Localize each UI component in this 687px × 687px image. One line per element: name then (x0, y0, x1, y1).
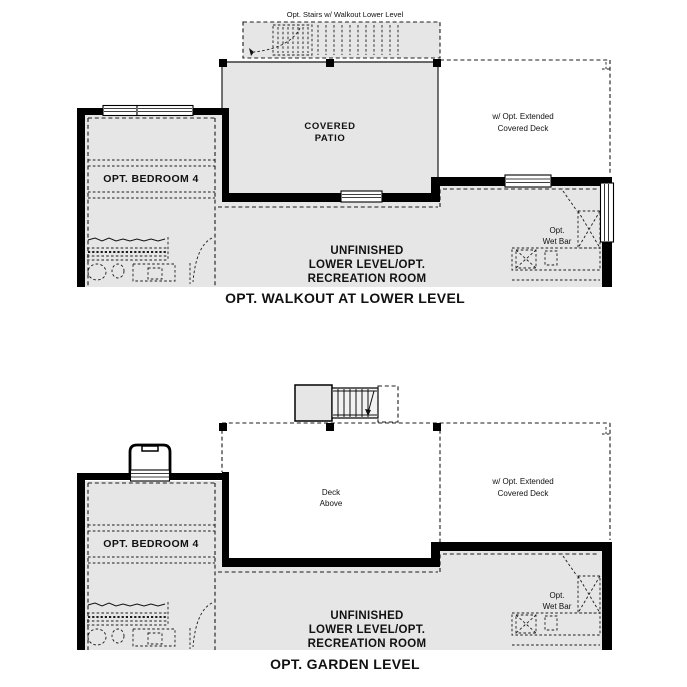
garden-stairs (332, 388, 378, 418)
garden-stairs-landing (295, 385, 332, 421)
garden-room-label-2: LOWER LEVEL/OPT. (309, 624, 426, 636)
well-window (131, 470, 170, 481)
deck-wall-window (505, 175, 551, 187)
walkout-caption: OPT. WALKOUT AT LOWER LEVEL (225, 290, 465, 306)
bedroom-label: OPT. BEDROOM 4 (103, 173, 198, 185)
walkout-lowerlevel-right (438, 186, 604, 287)
extended-deck-label-1: w/ Opt. Extended (491, 112, 553, 121)
garden-wall-deck-left (222, 472, 229, 567)
covered-patio-label-1: COVERED (304, 121, 355, 132)
window-well-notch (142, 446, 158, 451)
garden-room-label-3: RECREATION ROOM (308, 638, 427, 650)
room-label-2: LOWER LEVEL/OPT. (309, 259, 426, 271)
deck-above-label-1: Deck (322, 488, 341, 497)
wall-patio-left (222, 108, 229, 202)
garden-bedroom-label: OPT. BEDROOM 4 (103, 538, 198, 550)
garden-post-mid (326, 423, 334, 431)
patio-post-mid (326, 59, 334, 67)
wall-patio-bottom (222, 193, 438, 202)
room-label-3: RECREATION ROOM (308, 273, 427, 285)
garden-plan: Deck Above w/ Opt. Extended Covered Deck… (77, 385, 612, 672)
garden-wetbar-label-2: Wet Bar (543, 602, 572, 611)
extended-deck-label-2: Covered Deck (498, 124, 550, 133)
stairs-label: Opt. Stairs w/ Walkout Lower Level (287, 10, 404, 19)
patio-post-left (219, 59, 227, 67)
garden-bedroom-area (85, 481, 222, 650)
garden-extended-deck-label-2: Covered Deck (498, 489, 550, 498)
room-label-1: UNFINISHED (330, 245, 403, 257)
garden-room-label-1: UNFINISHED (330, 610, 403, 622)
covered-patio-label-2: PATIO (315, 133, 346, 144)
floorplan-canvas: Opt. Stairs w/ Walkout Lower Level COVER… (0, 0, 687, 687)
garden-window-well-group (130, 445, 170, 481)
garden-deck-corner-tick (602, 427, 610, 434)
walkout-bedroom-area (85, 115, 222, 287)
wetbar-label-2: Wet Bar (543, 237, 572, 246)
wetbar-label-1: Opt. (549, 226, 564, 235)
deck-corner-tick (602, 62, 610, 69)
walkout-plan: Opt. Stairs w/ Walkout Lower Level COVER… (77, 10, 614, 306)
garden-wall-left (77, 473, 85, 650)
wall-left (77, 108, 85, 287)
garden-caption: OPT. GARDEN LEVEL (270, 656, 420, 672)
garden-wall-right-section-top (431, 542, 610, 551)
garden-wall-deck-bottom (222, 558, 438, 567)
garden-post-right (433, 423, 441, 431)
garden-wall-right (602, 542, 612, 650)
garden-stairs-side-outline (378, 386, 398, 422)
bedroom-window-1 (103, 106, 137, 116)
right-wall-window (601, 183, 614, 242)
garden-extended-deck-label-1: w/ Opt. Extended (491, 477, 553, 486)
patio-wall-window (341, 191, 382, 202)
floorplan-page: Opt. Stairs w/ Walkout Lower Level COVER… (0, 0, 687, 687)
garden-wetbar-label-1: Opt. (549, 591, 564, 600)
deck-above-label-2: Above (320, 499, 343, 508)
patio-post-right (433, 59, 441, 67)
bedroom-window-2 (137, 106, 193, 116)
garden-post-left (219, 423, 227, 431)
